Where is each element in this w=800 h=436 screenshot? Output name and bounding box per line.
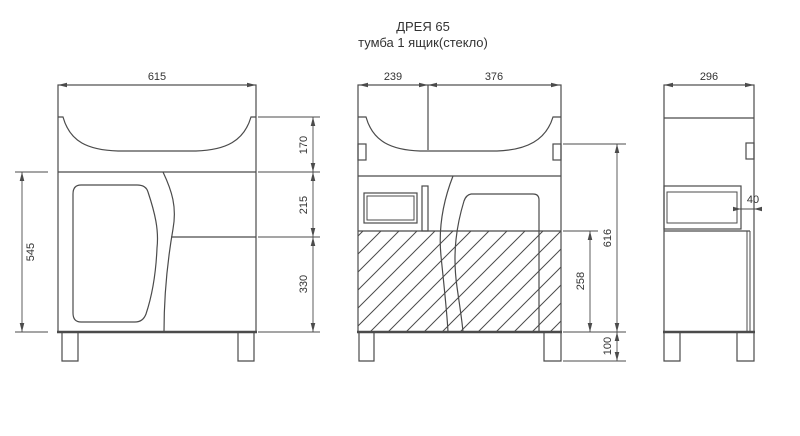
front-drawer-zone-dim-label: 215 [298, 196, 310, 214]
section-left-mount-tab [358, 144, 366, 160]
side-depth-dim-label: 296 [700, 71, 718, 83]
section-view [357, 85, 562, 361]
drawing-sheet: ДРЕЯ 65 тумба 1 ящик(стекло) 615 545 170… [0, 0, 800, 436]
section-right-mount-tab [553, 144, 561, 160]
section-hatch-area [358, 231, 561, 332]
section-leg-height-dim-label: 100 [602, 337, 614, 355]
section-drawer-inner [367, 196, 414, 220]
front-sink-zone-dim-label: 170 [298, 136, 310, 154]
technical-drawing: ДРЕЯ 65 тумба 1 ящик(стекло) 615 545 170… [0, 0, 800, 436]
front-width-dim-label: 615 [148, 71, 166, 83]
front-niche-zone-dim-label: 330 [298, 275, 310, 293]
front-right-extension-lines [258, 117, 320, 332]
front-sink-basin-curve [58, 117, 256, 151]
section-legs [359, 332, 561, 361]
side-view [663, 85, 755, 361]
side-gap-dim-label: 40 [747, 194, 759, 206]
section-door-width-dim-label: 376 [485, 71, 503, 83]
front-body-height-dim-label: 545 [25, 243, 37, 261]
drawing-title: ДРЕЯ 65 [396, 19, 450, 34]
section-divider-bar [422, 186, 428, 231]
section-body-height-dim-label: 616 [602, 229, 614, 247]
side-mount-tab [746, 143, 754, 159]
section-sink-basin-curve [358, 117, 561, 151]
side-view-dimensions: 296 40 [664, 71, 762, 211]
side-drawer-inner [667, 192, 737, 223]
section-drawer-width-dim-label: 239 [384, 71, 402, 83]
front-view [57, 85, 257, 361]
side-legs [664, 332, 754, 361]
front-divider-curve [163, 172, 174, 332]
front-door-panel [73, 185, 158, 322]
side-door-front-panel [747, 231, 750, 332]
front-view-dimensions: 615 545 170 215 330 [15, 71, 320, 332]
front-legs [62, 332, 254, 361]
section-drawer-outer [364, 193, 417, 223]
side-gap-dim-arrow-right [754, 207, 762, 211]
front-cabinet-outline [58, 85, 256, 332]
drawing-subtitle: тумба 1 ящик(стекло) [358, 35, 488, 50]
section-niche-height-dim-label: 258 [575, 272, 587, 290]
